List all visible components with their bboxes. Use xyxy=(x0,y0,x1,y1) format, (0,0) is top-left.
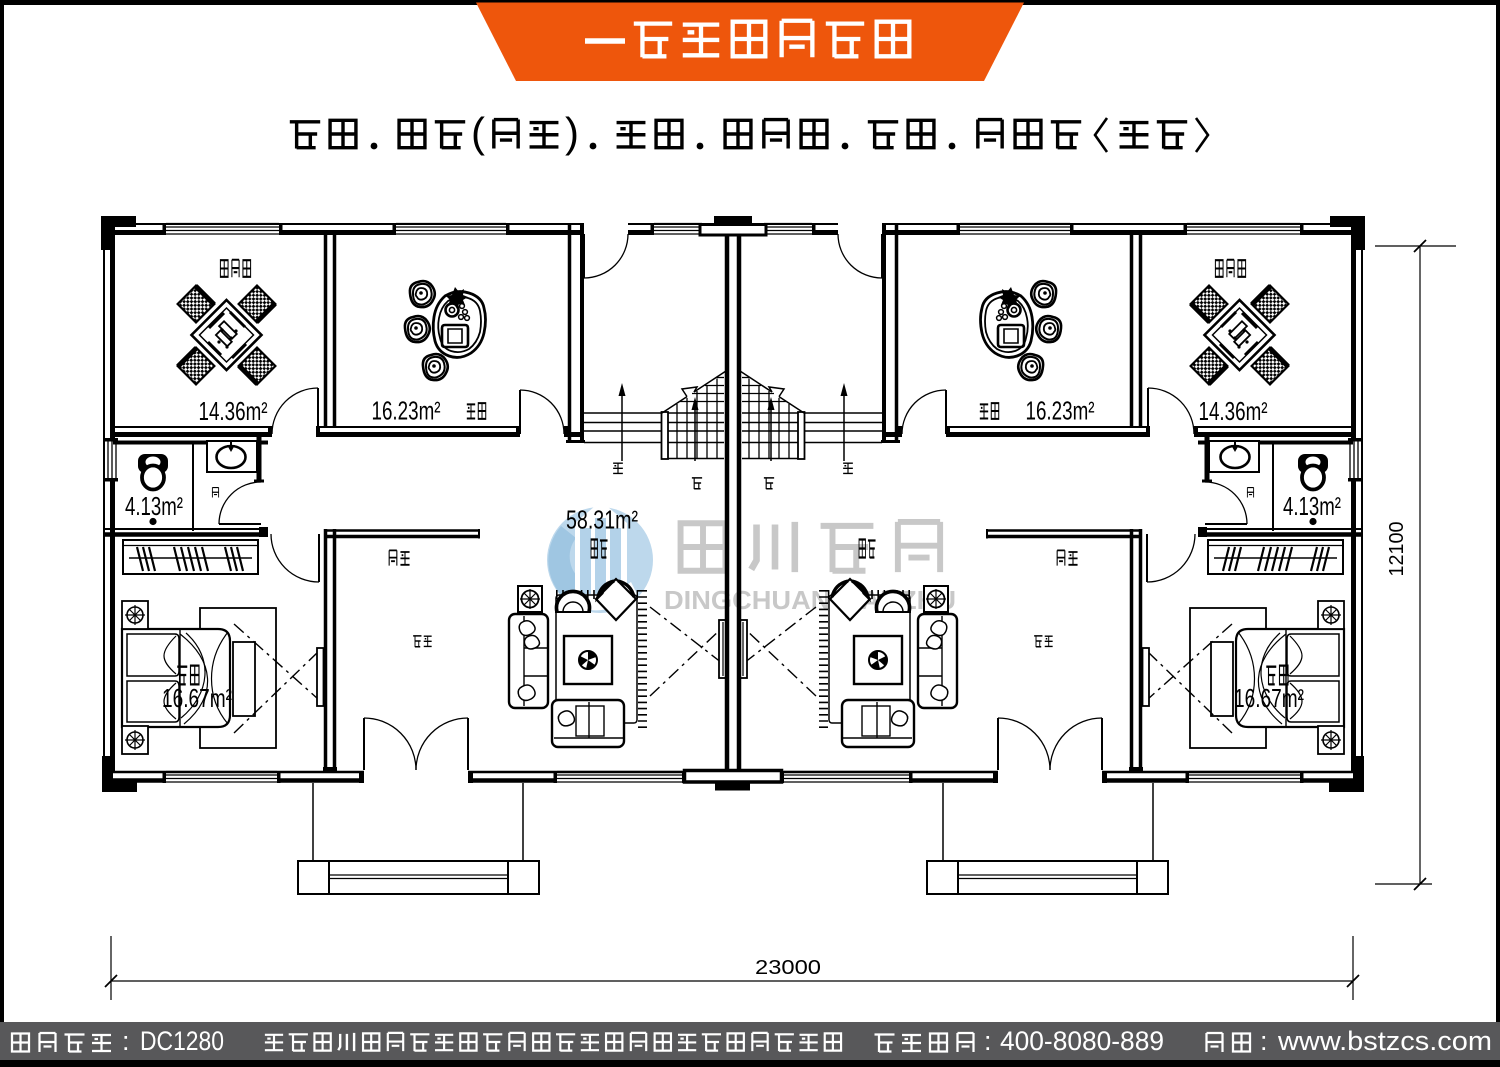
svg-text:4.13m²: 4.13m² xyxy=(125,491,183,521)
svg-text:DINGCHUAN JIANZHU: DINGCHUAN JIANZHU xyxy=(664,585,956,615)
svg-text:(: ( xyxy=(471,109,485,156)
svg-text:DC1280: DC1280 xyxy=(140,1026,224,1056)
svg-text:23000: 23000 xyxy=(755,957,821,979)
svg-text:14.36m²: 14.36m² xyxy=(1199,396,1268,426)
svg-text:www.bstzcs.com: www.bstzcs.com xyxy=(1277,1026,1492,1056)
svg-text:14.36m²: 14.36m² xyxy=(199,396,268,426)
svg-text:4.13m²: 4.13m² xyxy=(1283,491,1341,521)
svg-text:16.23m²: 16.23m² xyxy=(372,396,441,426)
svg-text:58.31m²: 58.31m² xyxy=(566,505,638,535)
svg-text:12100: 12100 xyxy=(1386,522,1408,577)
svg-text:16.67m²: 16.67m² xyxy=(162,683,232,713)
svg-text:400-8080-889: 400-8080-889 xyxy=(1000,1026,1164,1056)
svg-text::: : xyxy=(984,1026,992,1056)
svg-text:16.67m²: 16.67m² xyxy=(1234,683,1304,713)
svg-text::: : xyxy=(1260,1026,1268,1056)
svg-text:): ) xyxy=(565,109,579,156)
svg-text::: : xyxy=(122,1026,130,1056)
svg-text:16.23m²: 16.23m² xyxy=(1026,396,1095,426)
